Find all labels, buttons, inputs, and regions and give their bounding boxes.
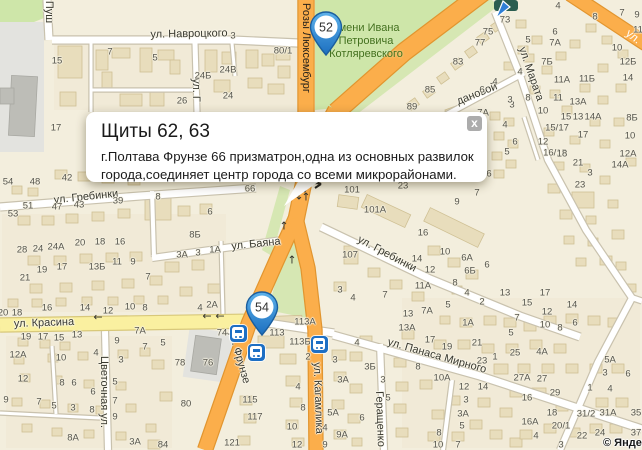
house-number: 74	[217, 328, 228, 339]
house-number: 4	[492, 77, 497, 88]
house-number: 8	[592, 12, 597, 23]
house-number: 18	[12, 308, 23, 319]
house-number: 24	[33, 244, 44, 255]
street-label: ул. Красина	[14, 316, 75, 330]
house-number: 76	[203, 358, 214, 369]
house-number: 5	[445, 300, 450, 311]
house-number: 7	[142, 342, 147, 353]
house-number: 21	[573, 158, 584, 169]
house-number: 107	[342, 250, 358, 261]
house-number: 24Б	[195, 71, 212, 82]
house-number: 7А	[421, 306, 433, 317]
house-number: 7	[514, 313, 519, 324]
house-number: 4	[607, 384, 612, 395]
transit-stop-icon[interactable]	[248, 344, 265, 361]
house-number: 15	[561, 112, 572, 123]
house-number: 3	[507, 95, 512, 106]
house-number: 39	[113, 196, 124, 207]
house-number: 77	[475, 38, 486, 49]
house-number: 3Б	[364, 362, 376, 373]
house-number: 4	[502, 120, 507, 131]
house-number: 7А	[134, 326, 146, 337]
house-number: 27А	[514, 373, 531, 384]
house-number: 9	[322, 440, 327, 450]
house-number: 66	[245, 184, 256, 195]
house-number: 25	[510, 348, 521, 359]
house-number: 10	[625, 131, 636, 142]
house-number: 10А	[434, 373, 451, 384]
house-number: 5	[459, 421, 464, 432]
house-number: 2	[305, 352, 310, 363]
house-number: 83	[453, 57, 464, 68]
house-number: 13Б	[89, 262, 106, 273]
house-number: 3	[230, 31, 235, 42]
house-number: 13	[72, 330, 83, 341]
house-number: 8	[452, 278, 457, 289]
house-number: 13	[500, 288, 511, 299]
house-number: 16	[418, 228, 429, 239]
house-number: 3А	[176, 250, 188, 261]
house-number: 3	[337, 285, 342, 296]
house-number: 8	[557, 323, 562, 334]
house-number: 18	[557, 149, 568, 160]
house-number: 18	[547, 408, 558, 419]
house-number: 6	[512, 137, 517, 148]
house-number: 24В	[220, 65, 237, 76]
street-label: ул. Гребинки	[356, 234, 419, 275]
house-number: 10	[125, 302, 136, 313]
house-number: 11	[553, 93, 563, 104]
house-number: 12	[542, 307, 553, 318]
house-number: 11	[633, 25, 642, 36]
house-number: 6	[479, 85, 484, 96]
poi-pin-icon[interactable]	[489, 0, 511, 25]
house-number: 7	[619, 8, 624, 19]
map-marker-52[interactable]: 52	[309, 11, 343, 57]
house-number: 48	[30, 177, 41, 188]
house-number: 17	[38, 332, 49, 343]
house-number: 3	[332, 355, 337, 366]
house-number: 5	[51, 401, 56, 412]
house-number: 8	[142, 303, 147, 314]
house-number: 9	[112, 412, 117, 423]
house-number: 16	[42, 303, 53, 314]
house-number: 80/1	[274, 46, 293, 57]
house-number: 20	[75, 238, 86, 249]
house-number: 3	[463, 395, 468, 406]
house-number: 12	[425, 265, 436, 276]
street-label: ул. Г	[190, 78, 202, 102]
house-number: 11Б	[579, 74, 595, 85]
house-number: 6	[207, 207, 212, 218]
house-number: 117	[247, 412, 262, 423]
house-number: 6Б	[464, 266, 476, 277]
house-number: 12А	[620, 149, 637, 160]
house-number: 10	[538, 106, 549, 117]
house-number: 29	[550, 388, 561, 399]
house-number: 101	[344, 185, 360, 196]
house-number: 8	[415, 362, 420, 373]
house-number: 42	[62, 173, 73, 184]
transit-stop-icon[interactable]	[311, 336, 328, 353]
map-labels-layer: ул. НавроцкогоПушул. Гул. Гребинкиул. Ба…	[0, 0, 642, 450]
house-number: 9	[130, 257, 135, 268]
house-number: 6	[572, 318, 577, 329]
house-number: 7	[145, 272, 150, 283]
house-number: 7	[382, 290, 387, 301]
map-canvas[interactable]: ул. НавроцкогоПушул. Гул. Гребинкиул. Ба…	[0, 0, 642, 450]
house-number: 4	[517, 67, 522, 78]
svg-text:54: 54	[255, 301, 269, 315]
house-number: 9	[114, 336, 119, 347]
house-number: 10	[433, 440, 444, 450]
balloon-tail	[278, 180, 324, 208]
house-number: 78	[175, 358, 186, 369]
balloon-title: Щиты 62, 63	[101, 121, 210, 143]
house-number: 12	[292, 440, 303, 450]
house-number: 11А	[554, 75, 570, 86]
house-number: 14	[80, 303, 91, 314]
street-label: ул. Навроцкого	[150, 27, 227, 40]
house-number: 3	[70, 403, 75, 414]
house-number: 15	[54, 333, 65, 344]
house-number: 24	[223, 91, 234, 102]
house-number: 121	[224, 438, 240, 449]
house-number: 12	[459, 382, 470, 393]
house-number: 15	[522, 298, 533, 309]
house-number: 5	[504, 147, 509, 158]
house-number: 21	[20, 273, 31, 284]
house-number: 7А	[549, 38, 561, 49]
house-number: 9А	[336, 430, 348, 441]
house-number: 5	[152, 53, 157, 64]
house-number: 3	[587, 168, 592, 179]
house-number: 12	[538, 137, 549, 148]
house-number: 17	[578, 130, 589, 141]
svg-text:52: 52	[319, 21, 333, 35]
house-number: 16	[115, 237, 126, 248]
house-number: 10	[56, 353, 67, 364]
street-label: ул. Гребинки	[53, 188, 119, 207]
house-number: 28	[17, 245, 28, 256]
house-number: 4	[464, 288, 469, 299]
house-number: 23	[477, 356, 488, 367]
house-number: 13А	[570, 97, 587, 108]
house-number: 53	[8, 209, 19, 220]
house-number: 8Б	[189, 230, 201, 241]
house-number: 13А	[399, 323, 416, 334]
house-number: 18	[95, 237, 106, 248]
house-number: 19	[442, 342, 453, 353]
house-number: 9	[634, 10, 639, 21]
house-number: 12	[18, 374, 29, 385]
house-number: 20	[0, 308, 8, 319]
house-number: 5А	[327, 408, 339, 419]
house-number: 17	[51, 123, 62, 134]
house-number: 23	[575, 180, 586, 191]
road-direction-arrow: ↑	[287, 254, 296, 267]
house-number: 7Б	[541, 57, 553, 68]
house-number: 9	[454, 197, 459, 208]
house-number: 12Б	[620, 57, 637, 68]
house-number: 4	[322, 423, 327, 434]
house-number: 21	[472, 338, 483, 349]
house-number: 19	[37, 265, 48, 276]
house-number: 10	[612, 43, 623, 54]
house-number: 3А	[457, 409, 469, 420]
map-marker-54[interactable]: 54	[245, 291, 279, 337]
house-number: 12А	[10, 350, 27, 361]
house-number: 8	[436, 428, 441, 439]
house-number: 85	[425, 85, 436, 96]
house-number: 19	[21, 332, 32, 343]
house-number: 31/2	[577, 409, 596, 420]
house-number: 75	[483, 27, 494, 38]
road-direction-arrow: ↑	[279, 220, 288, 233]
house-number: 4	[295, 382, 300, 393]
house-number: 27	[537, 374, 548, 385]
house-number: 43	[74, 200, 85, 211]
house-number: 2	[479, 297, 484, 308]
house-number: 4	[555, 1, 560, 12]
street-label: Цветочная ул.	[98, 356, 110, 428]
house-number: 3	[602, 368, 607, 379]
house-number: 4	[93, 348, 98, 359]
house-number: 24А	[48, 242, 65, 253]
house-number: 10	[287, 422, 298, 433]
house-number: 5	[112, 377, 117, 388]
transit-stop-icon[interactable]	[230, 325, 247, 342]
house-number: 7	[474, 188, 479, 199]
house-number: 31А	[600, 408, 617, 419]
house-number: 8	[525, 93, 530, 104]
house-number: 113Б	[289, 337, 310, 348]
balloon-body-line: города,соединяет центр города со всеми м…	[101, 167, 457, 182]
house-number: 14А	[612, 160, 629, 171]
house-number: 26	[177, 96, 188, 107]
house-number: 14	[478, 382, 489, 393]
house-number: 8	[89, 405, 94, 416]
house-number: 8А	[67, 433, 79, 444]
house-number: 5	[508, 328, 513, 339]
house-number: 51	[23, 201, 34, 212]
house-number: 6	[90, 387, 95, 398]
house-number: 12	[103, 306, 114, 317]
house-number: 1А	[209, 245, 221, 256]
house-number: 13	[573, 112, 584, 123]
house-number: 17	[425, 335, 436, 346]
house-number: 8	[300, 403, 305, 414]
house-number: 84	[158, 440, 169, 450]
house-number: 3А	[337, 375, 349, 386]
house-number: 7	[107, 47, 112, 58]
house-number: 20/1	[552, 421, 571, 432]
house-number: 10	[440, 247, 451, 258]
house-number: 16А	[522, 417, 539, 428]
house-number: 47	[52, 202, 63, 213]
house-number: 8	[155, 192, 160, 203]
house-number: 9	[3, 395, 8, 406]
house-number: 23	[398, 181, 409, 192]
road-direction-arrow: ←	[215, 310, 224, 323]
house-number: 5	[160, 338, 165, 349]
house-number: 5	[525, 35, 530, 46]
house-number: 7	[455, 440, 460, 450]
house-number: 35	[631, 408, 642, 419]
road-direction-arrow: ←	[93, 311, 102, 324]
house-number: 54	[3, 177, 14, 188]
house-number: 80	[181, 399, 192, 410]
house-number: 11	[112, 257, 122, 268]
house-number: 22	[577, 431, 588, 442]
house-number: 17	[540, 288, 551, 299]
house-number: 3	[380, 375, 385, 386]
house-number: 11А	[415, 281, 431, 292]
house-number: 6	[625, 369, 630, 380]
house-number: 4	[354, 338, 359, 349]
house-number: 7	[36, 397, 41, 408]
house-number: 4	[350, 293, 355, 304]
balloon-body-line: г.Полтава Фрунзе 66 призматрон,одна из о…	[101, 149, 474, 164]
house-number: 15/17	[545, 123, 569, 134]
street-label: ул. Баяна	[231, 235, 281, 252]
house-number: 4А	[536, 347, 548, 358]
house-number: 14	[567, 300, 578, 311]
balloon-close-button[interactable]: x	[467, 116, 482, 131]
house-number: 6	[71, 378, 76, 389]
house-number: 6	[484, 260, 489, 271]
house-number: 4	[533, 431, 538, 442]
house-number: 8Б	[626, 113, 638, 124]
map-copyright: © Яндекс	[603, 437, 642, 449]
house-number: 14	[623, 73, 634, 84]
house-number: 17	[57, 262, 68, 273]
house-number: 5А	[604, 355, 616, 366]
house-number: 6А	[461, 253, 473, 264]
house-number: 6	[552, 27, 557, 38]
house-number: 3	[195, 248, 200, 259]
house-number: 89	[407, 102, 418, 113]
house-number: 3	[118, 355, 123, 366]
house-number: 1	[587, 383, 592, 394]
balloon-popup: x Щиты 62, 63 г.Полтава Фрунзе 66 призма…	[86, 112, 487, 182]
street-label: Пуш	[43, 1, 55, 23]
house-number: 14А	[585, 112, 602, 123]
house-number: 115	[242, 395, 257, 406]
house-number: 101А	[364, 205, 386, 216]
house-number: 3А	[129, 437, 141, 448]
house-number: 113А	[294, 317, 315, 328]
house-number: 15	[52, 56, 63, 67]
house-number: 7	[112, 396, 117, 407]
house-number: 13	[403, 309, 414, 320]
house-number: 1А	[462, 318, 474, 329]
house-number: 14	[412, 254, 423, 265]
house-number: 10	[540, 320, 551, 331]
road-direction-arrow: ←	[202, 310, 211, 323]
house-number: 5	[385, 393, 390, 404]
house-number: 3	[558, 440, 563, 450]
house-number: 1	[492, 352, 497, 363]
house-number: 6	[359, 413, 364, 424]
house-number: 8	[59, 378, 64, 389]
house-number: 16	[522, 393, 533, 404]
house-number: 6	[486, 169, 491, 180]
